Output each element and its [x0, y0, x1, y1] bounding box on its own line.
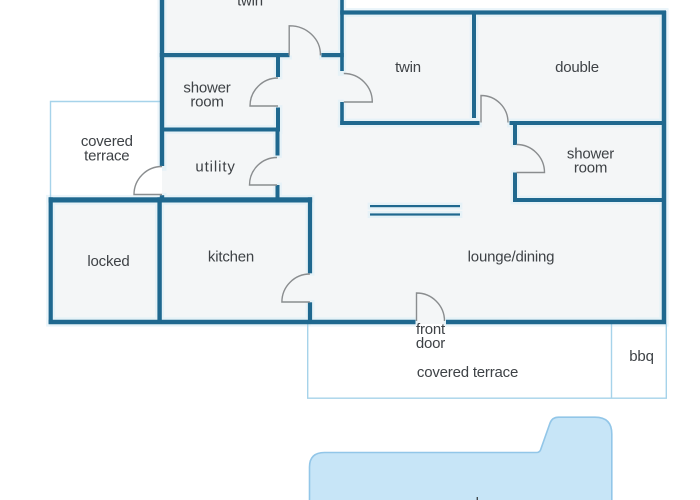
svg-text:terrace: terrace [84, 148, 129, 165]
svg-text:locked: locked [87, 253, 129, 270]
svg-text:door: door [416, 335, 445, 352]
svg-text:double: double [555, 59, 599, 76]
svg-text:twin: twin [237, 0, 263, 9]
svg-text:pool: pool [451, 495, 479, 500]
svg-text:room: room [574, 160, 607, 177]
svg-text:bbq: bbq [629, 348, 653, 365]
svg-text:room: room [190, 94, 223, 111]
svg-text:kitchen: kitchen [208, 249, 254, 266]
svg-text:utility: utility [195, 158, 235, 175]
svg-text:twin: twin [395, 59, 421, 76]
svg-text:covered terrace: covered terrace [417, 364, 518, 381]
svg-text:lounge/dining: lounge/dining [468, 249, 555, 266]
